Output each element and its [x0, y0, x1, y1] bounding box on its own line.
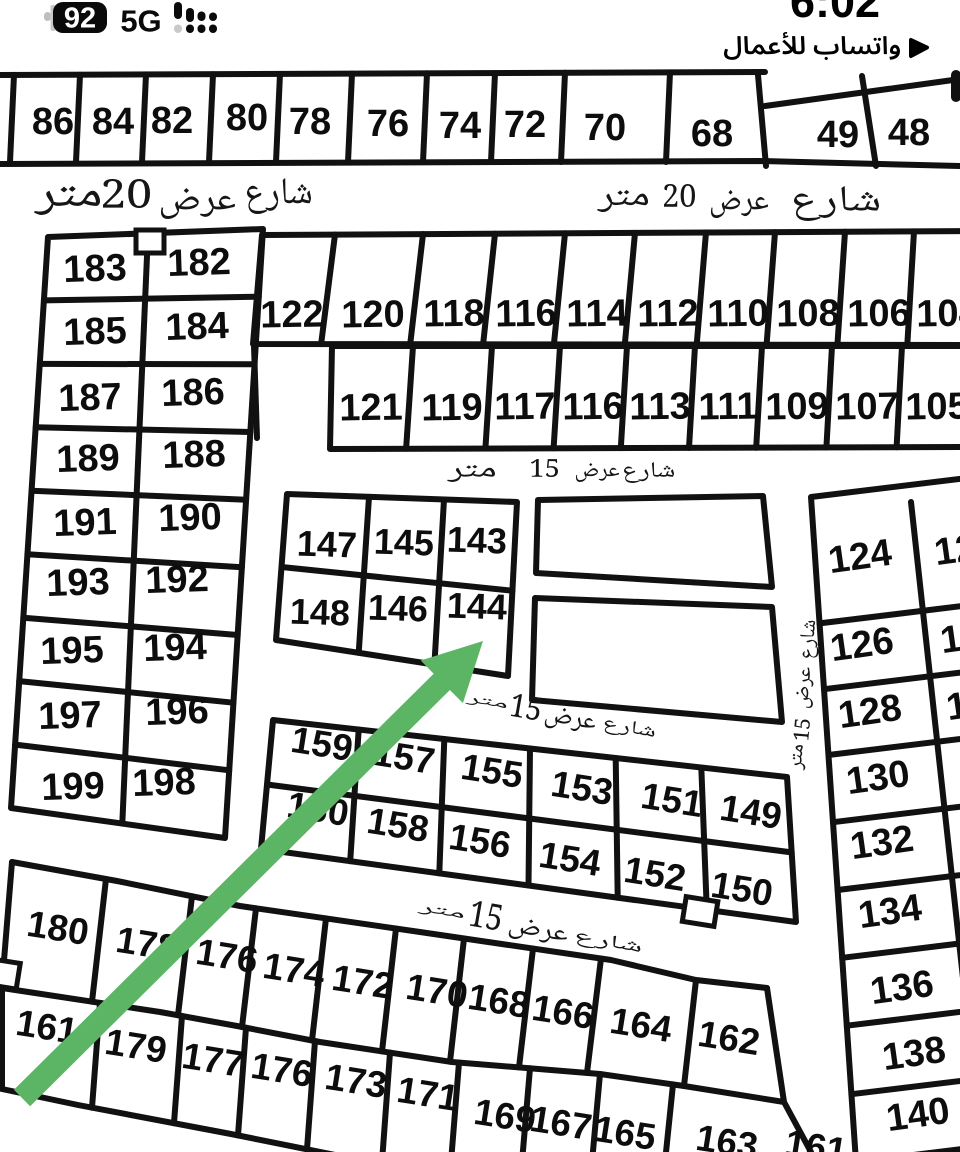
svg-text:191: 191 [53, 501, 118, 545]
svg-text:82: 82 [151, 100, 193, 142]
svg-text:111: 111 [698, 385, 758, 428]
svg-text:192: 192 [145, 558, 210, 602]
svg-text:80: 80 [226, 97, 268, 139]
svg-text:105: 105 [905, 385, 960, 428]
svg-text:128: 128 [836, 687, 905, 737]
svg-text:144: 144 [446, 584, 507, 627]
svg-text:116: 116 [495, 292, 557, 335]
svg-text:109: 109 [765, 385, 829, 428]
svg-text:68: 68 [691, 113, 733, 155]
svg-text:193: 193 [46, 561, 111, 605]
svg-text:186: 186 [161, 371, 226, 415]
svg-text:49: 49 [817, 114, 859, 156]
svg-text:190: 190 [158, 496, 223, 540]
svg-text:198: 198 [132, 761, 197, 805]
svg-text:116: 116 [562, 385, 624, 428]
svg-text:120: 120 [341, 293, 405, 336]
svg-text:78: 78 [289, 101, 331, 143]
svg-text:84: 84 [92, 101, 134, 143]
svg-text:148: 148 [289, 590, 350, 633]
svg-text:194: 194 [143, 626, 208, 670]
svg-text:143: 143 [446, 518, 507, 561]
svg-text:134: 134 [856, 887, 925, 937]
svg-text:147: 147 [296, 522, 357, 565]
svg-text:70: 70 [584, 107, 626, 149]
svg-text:121: 121 [339, 386, 403, 429]
svg-text:76: 76 [367, 103, 409, 145]
svg-text:74: 74 [439, 105, 481, 147]
svg-text:146: 146 [367, 586, 428, 629]
svg-text:132: 132 [848, 818, 917, 868]
svg-text:123: 123 [932, 524, 960, 574]
svg-text:108: 108 [776, 292, 840, 335]
svg-text:6:02: 6:02 [790, 0, 880, 27]
svg-text:199: 199 [41, 765, 106, 809]
svg-text:145: 145 [373, 520, 434, 563]
svg-text:183: 183 [63, 247, 128, 291]
svg-text:187: 187 [58, 376, 123, 420]
svg-text:184: 184 [165, 305, 230, 349]
svg-text:104: 104 [916, 292, 960, 335]
svg-text:119: 119 [421, 386, 483, 429]
svg-text:124: 124 [826, 532, 895, 582]
svg-text:122: 122 [260, 293, 324, 336]
svg-text:138: 138 [880, 1029, 949, 1079]
svg-text:118: 118 [423, 292, 485, 335]
svg-text:110: 110 [707, 292, 769, 335]
svg-text:114: 114 [566, 292, 628, 335]
svg-text:140: 140 [884, 1090, 953, 1140]
svg-text:188: 188 [162, 433, 227, 477]
svg-text:182: 182 [167, 241, 232, 285]
svg-text:48: 48 [888, 112, 930, 154]
svg-text:126: 126 [828, 620, 897, 670]
svg-text:113: 113 [629, 385, 691, 428]
svg-text:136: 136 [868, 963, 937, 1013]
svg-text:195: 195 [40, 629, 105, 673]
svg-text:130: 130 [844, 753, 913, 803]
svg-text:106: 106 [847, 292, 911, 335]
svg-text:196: 196 [145, 690, 210, 734]
svg-text:107: 107 [835, 385, 899, 428]
svg-text:72: 72 [504, 104, 546, 146]
svg-text:86: 86 [32, 101, 74, 143]
svg-text:117: 117 [494, 385, 556, 428]
svg-text:112: 112 [637, 292, 699, 335]
svg-text:92: 92 [64, 3, 96, 35]
svg-text:189: 189 [56, 437, 121, 481]
svg-text:5G: 5G [120, 4, 161, 39]
svg-text:197: 197 [38, 694, 103, 738]
svg-text:185: 185 [63, 310, 128, 354]
